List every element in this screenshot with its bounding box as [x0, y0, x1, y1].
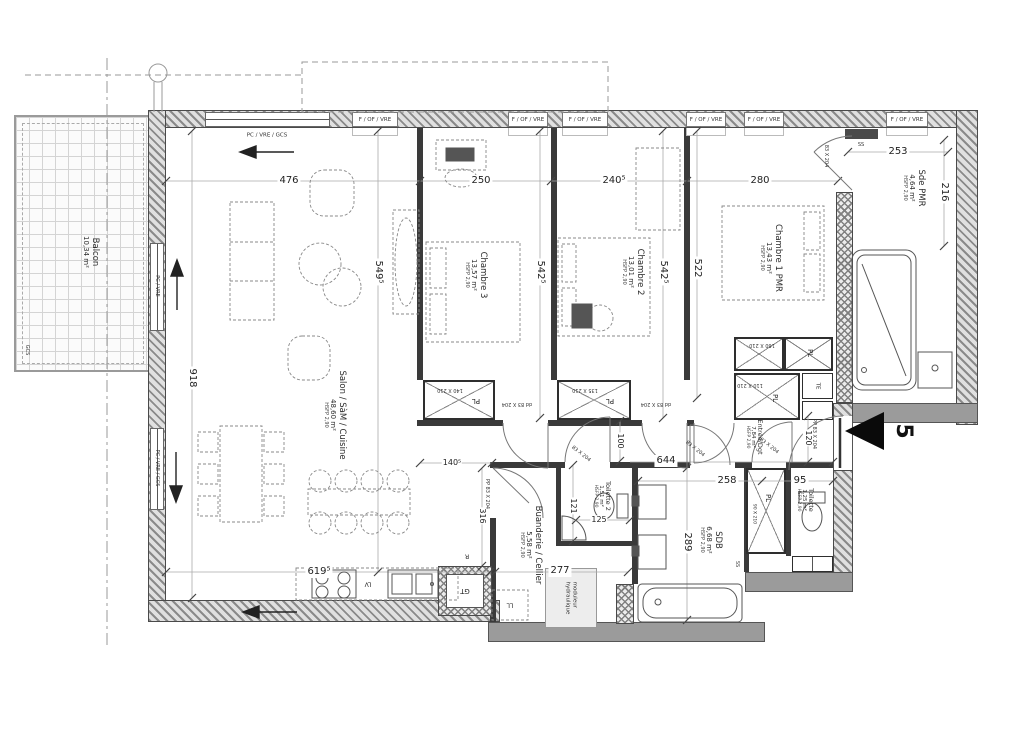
- dim-619-5: 619⁵: [305, 566, 332, 578]
- dim-95: 95: [792, 475, 809, 487]
- room-ceiling-height: HSFP 2,90: [759, 203, 765, 313]
- room-area: 10,34 m²: [82, 207, 90, 297]
- dimension-ticks: [162, 127, 952, 624]
- room-ceiling-height: HSFP 2,90: [621, 217, 627, 327]
- dim-253: 253: [886, 146, 909, 158]
- gt-label: GT: [460, 587, 469, 595]
- dim-140-5: 140⁵: [442, 458, 462, 468]
- closet-size-ch2: 135 X 210: [572, 387, 598, 393]
- lv-label: LV: [365, 580, 372, 587]
- closet-label-pl-sdb: PL: [764, 494, 772, 502]
- closet-label-pl-ch1: PL: [806, 349, 814, 357]
- dd-text: dd: [665, 401, 671, 407]
- door-dd-label-2: dd 83 X 204: [641, 401, 671, 407]
- room-ceiling-height: HSFP 2,90: [902, 153, 908, 223]
- dim-277: 277: [548, 565, 571, 577]
- unit-number: 5: [890, 423, 916, 438]
- dim-240-5: 240⁵: [600, 175, 627, 187]
- room-name: Chambre 2: [635, 217, 645, 327]
- dim-316: 316: [477, 507, 487, 524]
- dim-125: 125: [590, 515, 607, 525]
- unit-direction-arrow: [845, 412, 884, 450]
- closet-label-pl-ch3: PL: [472, 397, 480, 405]
- room-area: 48,60 m²: [329, 355, 337, 475]
- door-size-sde: 83 X 204: [823, 145, 829, 168]
- dim-549-5: 549⁵: [372, 258, 384, 285]
- dim-918: 918: [186, 366, 198, 389]
- closet-size-ch1: 160 X 210: [749, 342, 775, 348]
- room-ceiling-height: HSFP 2,90: [323, 355, 329, 475]
- dim-289: 289: [681, 530, 693, 553]
- room-label-balcon: Balcon 10,34 m²: [70, 207, 100, 297]
- dim-522: 522: [691, 256, 703, 279]
- pp-text: PP: [484, 479, 490, 485]
- ss-label-sdb: SS: [734, 561, 740, 567]
- room-name: Chambre 1 PMR: [773, 203, 783, 313]
- door-size-text: 83 X 204: [502, 401, 525, 407]
- room-ceiling-height: HSFP 2,90: [745, 397, 750, 477]
- dim-280: 280: [748, 175, 771, 187]
- closet-size-sdb: 90 X 210: [751, 504, 756, 524]
- module-text-1: moduleur: [572, 582, 578, 608]
- room-name: Balcon: [90, 207, 100, 297]
- room-label-entree: Entrée/Dgt 7,84 m² HSFP 2,90: [730, 397, 764, 477]
- dim-542-5-a: 542⁵: [534, 258, 546, 285]
- room-area: 13,43 m²: [765, 203, 773, 313]
- dim-100: 100: [615, 432, 625, 449]
- closet-label-pl-ch2: PL: [606, 397, 614, 405]
- room-area: 4,64 m²: [908, 153, 916, 223]
- room-label-sde-pmr: Sde PMR 4,64 m² HSFP 2,90: [890, 153, 926, 223]
- fridge-label-r: R: [465, 552, 469, 559]
- ss-label-sde: SS: [858, 142, 864, 148]
- dim-250: 250: [469, 175, 492, 187]
- closet-label-pl-entree: PL: [771, 394, 779, 402]
- door-size-text: 83 X 204: [641, 401, 664, 407]
- room-label-chambre3: Chambre 3 13,57 m² HSFP 2,90: [452, 220, 488, 330]
- sliding-door-label: PC / VRE / GCS: [247, 133, 288, 140]
- module-label: moduleur hydraulique: [564, 582, 577, 615]
- plan-linework: [0, 0, 1024, 752]
- door-size-text: 83 X 204: [811, 427, 817, 450]
- door-dd-label-1: dd 83 X 204: [502, 401, 532, 407]
- furniture: [198, 140, 824, 620]
- dd-text: dd: [526, 401, 532, 407]
- room-label-salon: Salon / SàM / Cuisine 48,60 m² HSFP 2,90: [307, 355, 347, 475]
- closet-size-entree: 110 X 210: [737, 382, 763, 388]
- room-name: SDB: [713, 501, 723, 579]
- floor-plan: F / OF / VRE F / OF / VRE F / OF / VRE F…: [0, 0, 1024, 752]
- door-size-text: 83 X 204: [484, 487, 490, 510]
- door-size-buanderie: PP 83 X 204: [484, 479, 490, 509]
- room-label-buanderie: Buanderie / Cellier 5,58 m² HSFP 2,90: [513, 490, 543, 600]
- dim-216: 216: [938, 180, 950, 203]
- dim-476: 476: [277, 175, 300, 187]
- room-area: 6,68 m²: [705, 501, 713, 579]
- room-name: Salon / SàM / Cuisine: [337, 355, 347, 475]
- room-area: 7,84 m²: [750, 397, 756, 477]
- module-text-2: hydraulique: [565, 582, 571, 615]
- te-label: TE: [814, 383, 821, 390]
- room-label-chambre1: Chambre 1 PMR 13,43 m² HSFP 2,90: [747, 203, 783, 313]
- room-area: 13,57 m²: [470, 220, 478, 330]
- room-area: 13,01 m²: [627, 217, 635, 327]
- room-name: Chambre 3: [478, 220, 488, 330]
- dimension-lines: [166, 131, 948, 620]
- balcony-gcs-label: GCS: [24, 345, 30, 356]
- closet-size-ch3: 140 X 210: [437, 387, 463, 393]
- room-label-sdb: SDB 6,68 m² HSFP 2,90: [689, 501, 723, 579]
- left-window-label-2: PC / VRE / GCS: [154, 450, 160, 487]
- room-ceiling-height: HSFP 2,90: [464, 220, 470, 330]
- room-name: Buanderie / Cellier: [533, 490, 543, 600]
- dim-542-5-b: 542⁵: [657, 258, 669, 285]
- dim-258: 258: [715, 475, 738, 487]
- dim-644: 644: [654, 455, 677, 467]
- room-ceiling-height: HSFP 2,90: [519, 490, 525, 600]
- left-window-label-1: PC / VRE: [154, 275, 160, 296]
- door-size-entry: PP 83 X 204: [811, 419, 817, 449]
- room-ceiling-height: HSFP 2,90: [699, 501, 705, 579]
- pp-text: PP: [811, 419, 817, 425]
- room-area: 5,58 m²: [525, 490, 533, 600]
- ll-label: LL: [507, 601, 514, 608]
- dim-121: 121: [568, 497, 578, 514]
- room-label-chambre2: Chambre 2 13,01 m² HSFP 2,90: [611, 217, 645, 327]
- room-name: Sde PMR: [916, 153, 926, 223]
